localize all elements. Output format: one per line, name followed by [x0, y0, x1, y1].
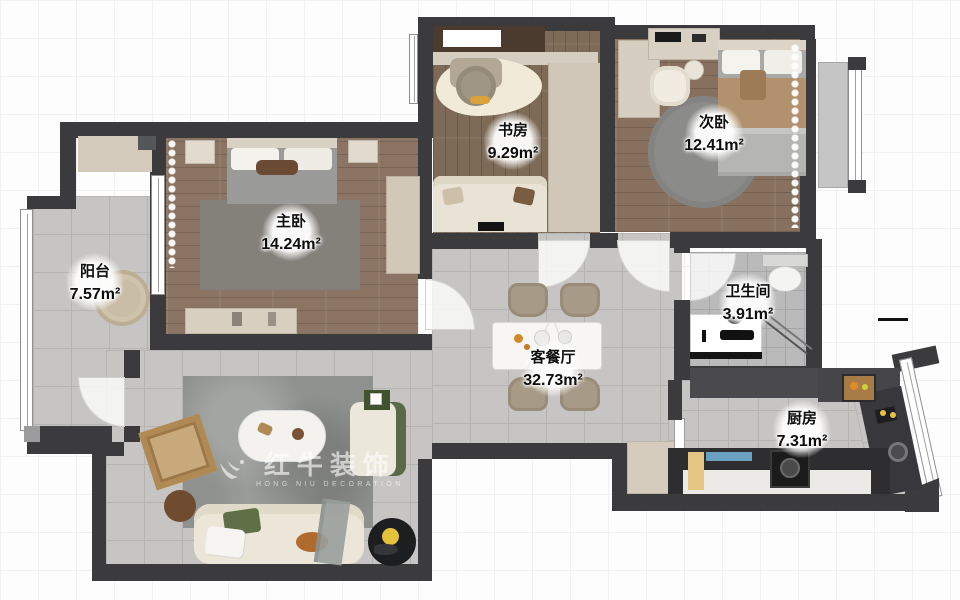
- bay-window-slab: [818, 62, 848, 188]
- watermark-subtitle: HONG NIU DECORATION: [256, 481, 404, 488]
- bath-faucet: [702, 330, 706, 342]
- kitchen-fruit-2: [862, 384, 868, 390]
- room-name: 卫生间: [725, 280, 770, 301]
- wall-balcony-jog: [27, 196, 76, 209]
- dining-chair-1: [508, 283, 548, 317]
- room-name: 阳台: [80, 260, 110, 281]
- stove-burner: [780, 458, 800, 478]
- room-label-balcony: 阳台 7.57m²: [70, 260, 121, 304]
- kitchen-cutting-board: [688, 452, 704, 490]
- kitchen-blue-mat: [706, 452, 752, 461]
- bedroom2-curtain: [791, 44, 800, 228]
- wall-balcony-upper-left: [60, 122, 76, 198]
- study-sofa-pillow-left: [442, 186, 464, 205]
- wall-living-left-upper-a: [124, 350, 140, 378]
- wall-kitchen-bottom: [640, 494, 932, 511]
- room-name: 书房: [498, 119, 528, 140]
- living-stool: [164, 490, 196, 522]
- balcony-window-left: [20, 209, 33, 431]
- bedroom2-cushion: [740, 70, 766, 100]
- kitchen-counter-top-wall: [690, 368, 820, 398]
- living-plant-pot: [370, 393, 382, 405]
- wall-bedroom2-bottom: [670, 232, 816, 248]
- bedroom2-desk-item: [655, 32, 681, 42]
- master-dresser-item2: [268, 312, 276, 326]
- room-name: 次卧: [699, 111, 729, 132]
- wall-living-left-step: [92, 442, 124, 456]
- side-table-yellow-ball: [382, 528, 399, 545]
- shower-fixture: [720, 330, 754, 340]
- kitchen-flower-2: [890, 412, 896, 418]
- watermark-text: 红牛装饰 HONG NIU DECORATION: [256, 452, 404, 488]
- kitchen-fruit: [850, 382, 858, 390]
- master-window: [151, 175, 165, 295]
- bath-counter-edge: [690, 352, 762, 359]
- dining-chair-2: [560, 283, 600, 317]
- room-area: 7.31m²: [777, 433, 828, 451]
- study-window: [409, 34, 418, 104]
- study-deco: [470, 96, 490, 104]
- room-name: 厨房: [787, 407, 817, 428]
- dining-fruit: [514, 334, 523, 343]
- room-name: 主卧: [276, 210, 306, 231]
- wall-bath-right: [806, 239, 822, 380]
- wall-kitchen-left: [668, 380, 682, 420]
- master-nightstand-left: [185, 140, 215, 164]
- room-area: 3.91m²: [723, 306, 774, 324]
- room-area: 14.24m²: [261, 236, 321, 254]
- master-bed-headboard: [227, 138, 337, 148]
- master-dresser-item: [232, 312, 242, 326]
- master-throw-pillow: [256, 160, 298, 175]
- sofa-pillow-white: [204, 526, 245, 558]
- watermark-brand: 红牛装饰: [264, 452, 396, 478]
- room-label-kitchen: 厨房 7.31m²: [777, 407, 828, 451]
- side-table-deco: [374, 544, 398, 555]
- study-closet-shelf: [443, 30, 501, 47]
- coffee-table-bowl: [292, 428, 304, 440]
- dimension-mark: [878, 318, 908, 321]
- floor-plan-canvas: 红牛装饰 HONG NIU DECORATION 阳台 7.57m² 主卧 14…: [0, 0, 960, 600]
- wall-study-left: [418, 17, 433, 138]
- wall-master-right: [418, 138, 432, 279]
- kitchen-cabinet-wood: [842, 374, 876, 402]
- wall-dining-bottom: [432, 443, 634, 459]
- room-label-bathroom: 卫生间 3.91m²: [723, 280, 774, 324]
- wall-bath-left-upper: [674, 240, 690, 253]
- room-area: 32.73m²: [523, 372, 583, 390]
- study-wardrobe-column: [548, 63, 600, 232]
- wall-bedroom2-left: [600, 17, 615, 232]
- wall-corridor-top-a: [432, 233, 538, 249]
- wall-living-bottom: [92, 564, 432, 581]
- wall-master-bottom: [150, 334, 432, 350]
- study-laptop: [478, 222, 504, 231]
- room-label-study: 书房 9.29m²: [488, 119, 539, 163]
- room-label-living-dining: 客餐厅 32.73m²: [523, 346, 583, 390]
- master-nightstand-right: [348, 140, 378, 163]
- wall-living-left-lower: [92, 442, 106, 570]
- kitchen-flower-1: [880, 410, 886, 416]
- bay-window-corner-bottom: [848, 180, 866, 193]
- bay-window-glass: [848, 62, 862, 188]
- room-label-second-bedroom: 次卧 12.41m²: [684, 111, 744, 155]
- room-area: 9.29m²: [488, 145, 539, 163]
- master-curtain: [168, 140, 177, 268]
- balcony-box: [138, 136, 156, 150]
- room-area: 7.57m²: [70, 286, 121, 304]
- wall-corridor-top-b: [590, 233, 618, 248]
- bedroom2-basket: [650, 66, 690, 106]
- brand-watermark: 红牛装饰 HONG NIU DECORATION: [218, 452, 404, 488]
- wall-living-right: [418, 459, 432, 566]
- balcony-sill: [24, 426, 40, 442]
- room-area: 12.41m²: [684, 137, 744, 155]
- room-name: 客餐厅: [530, 346, 575, 367]
- master-wardrobe: [386, 176, 420, 274]
- room-label-master-bedroom: 主卧 14.24m²: [261, 210, 321, 254]
- bay-window-corner-top: [848, 57, 866, 70]
- bull-logo-icon: [218, 457, 248, 483]
- bedroom2-desk-item2: [692, 34, 706, 42]
